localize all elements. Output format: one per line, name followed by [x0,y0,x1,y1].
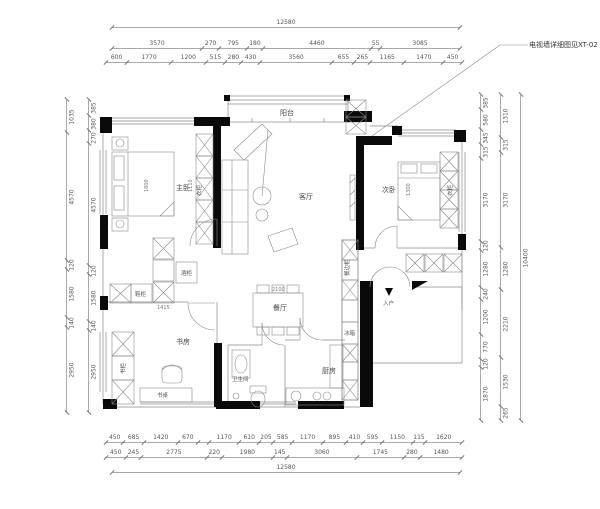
dim-segment: 1870 [481,368,492,420]
dim-segment: 895 [323,431,346,442]
dim-bed-second: 1300 [406,183,412,196]
dim-segment: 12580 [112,461,460,472]
label-wine-cabinet: 酒柜 [181,269,193,277]
bed-second [398,162,440,220]
label-wardrobe-second: 衣柜 [446,184,454,196]
dim-segment: 220 [207,446,222,457]
room-label-study: 书房 [176,337,190,346]
dim-segment: 55 [371,37,380,48]
label-bookcase: 书柜 [119,362,127,374]
dim-segment: 3560 [260,51,333,62]
dim-segment: 1480 [420,446,462,457]
dim-row-top-mid: 35702707951804460553085 [112,37,460,49]
dim-segment: 1745 [357,446,404,457]
dim-segment: 265 [501,407,512,420]
dim-segment [198,431,209,442]
dim-segment: 2950 [67,328,78,412]
dim-row-top-fine: 6001770120051528043035606552651165147045… [106,51,462,63]
dim-segment: 1200 [171,51,206,62]
dim-segment: 450 [106,446,126,457]
dim-row-top-overall: 12580 [112,16,460,28]
walls-solid [100,95,466,409]
dim-col-right-middle: 13103153170128022101530265 [500,95,512,420]
room-label-second-bedroom: 次卧 [382,185,396,194]
door-arcs [188,219,410,345]
dim-segment: 140 [89,322,100,332]
dim-segment: 280 [225,51,241,62]
dim-segment: 595 [363,431,382,442]
dim-segment: 670 [178,431,198,442]
dim-segment: 1280 [501,248,512,290]
dim-segment: 315 [501,138,512,153]
dim-segment: 1580 [67,270,78,318]
dim-segment: 3060 [287,446,357,457]
dim-segment: 1170 [209,431,240,442]
dim-cabinet-run: 1415 [157,305,170,311]
dim-segment: 120 [67,261,78,270]
dim-segment: 145 [273,446,287,457]
dim-segment: 1530 [501,358,512,407]
dim-segment: 655 [332,51,354,62]
dim-segment: 1980 [222,446,273,457]
dim-segment: 430 [241,51,259,62]
dim-segment: 685 [123,431,143,442]
dim-segment: 115 [413,431,426,442]
dim-segment: 4570 [67,133,78,260]
tv-wall-annotation: 电视墙详细图见XT-02 [529,40,598,50]
dim-segment: 270 [89,131,100,144]
dim-segment: 410 [346,431,363,442]
floorplan-page: 阳台 客厅 主卧 次卧 书房 餐厅 卫生间 厨房 入户 衣柜 衣柜 书柜 书桌 … [0,0,600,509]
dim-segment: 610 [239,431,258,442]
label-wardrobe-master: 衣柜 [195,184,203,196]
dim-segment: 315 [481,145,492,159]
dim-segment: 385 [481,95,492,110]
dim-segment: 140 [67,318,78,328]
dim-segment: 180 [247,37,262,48]
room-label-entry: 入户 [383,299,394,307]
dim-segment: 600 [106,51,127,62]
dim-segment: 380 [89,116,100,132]
dim-segment: 280 [404,446,420,457]
dim-segment: 770 [481,335,492,360]
dim-dining-width: 2100 [272,287,285,293]
room-label-kitchen: 厨房 [322,366,336,375]
dim-segment: 12580 [112,16,460,27]
entry-door-symbol [385,288,393,296]
dim-col-right-outer: 10400 [520,95,532,420]
dim-row-bottom-fine: 4506851420670117061020558511708954105951… [106,431,462,443]
dim-row-bottom-mid: 45024527752201980145306017452801480 [106,446,462,458]
dim-segment: 3170 [481,159,492,242]
label-shoe-cabinet: 鞋柜 [135,290,147,298]
dim-segment: 450 [106,431,123,442]
kitchen-counters [286,345,344,405]
label-fridge: 冰箱 [344,329,356,337]
dim-bed-master: 1800 [144,179,150,192]
dim-col-left-outer: 1035457012015801402950 [66,100,78,412]
dim-segment: 120 [481,242,492,251]
dim-segment: 3170 [501,153,512,248]
sofa-group [222,124,298,254]
dim-segment: 3570 [112,37,202,48]
dim-segment: 3085 [380,37,460,48]
dim-segment: 205 [259,431,273,442]
dim-segment: 1420 [144,431,178,442]
dim-segment: 1770 [127,51,171,62]
room-label-bathroom: 卫生间 [232,375,249,383]
dim-segment: 265 [354,51,370,62]
bed-master [112,137,174,231]
dim-col-right-inner: 3855803453153170120128024012007701201870 [480,95,492,420]
dim-col-left-inner: 385380270457012015801402950 [88,100,100,412]
room-label-balcony: 阳台 [280,108,294,117]
dim-segment: 1170 [292,431,323,442]
dim-wardrobe-run: 1110 [188,179,194,192]
dim-row-bottom-overall: 12580 [112,461,460,473]
dim-segment: 1620 [425,431,462,442]
dim-segment: 1470 [404,51,443,62]
dim-segment: 1150 [382,431,412,442]
entry-cabinet [346,100,366,134]
label-desk: 书桌 [157,391,169,399]
room-label-living: 客厅 [299,192,313,201]
dim-segment: 120 [481,360,492,369]
label-sideboard: 餐边柜 [343,259,351,276]
dim-segment: 585 [273,431,292,442]
dim-segment: 1200 [481,300,492,335]
dim-segment: 120 [89,266,100,275]
dim-segment: 345 [481,130,492,144]
dim-segment: 580 [481,110,492,130]
dim-segment: 1310 [501,95,512,138]
dim-segment: 515 [206,51,226,62]
dim-segment: 245 [126,446,142,457]
dim-segment: 450 [443,51,462,62]
dim-segment: 1165 [370,51,404,62]
dim-segment: 4460 [263,37,372,48]
dim-segment: 240 [481,288,492,300]
dim-segment: 2950 [89,331,100,412]
dim-segment: 795 [219,37,247,48]
tv-panel [350,175,355,220]
room-label-dining: 餐厅 [273,303,287,312]
dim-segment: 10400 [521,95,532,420]
corridor-cabinets [406,254,462,272]
dim-segment: 385 [89,100,100,116]
dim-segment: 270 [202,37,219,48]
dim-segment: 1035 [67,100,78,133]
dim-segment: 4570 [89,144,100,266]
dim-segment: 2775 [141,446,206,457]
dim-segment: 1280 [481,251,492,288]
dim-segment: 2210 [501,290,512,358]
dim-segment: 1580 [89,275,100,321]
